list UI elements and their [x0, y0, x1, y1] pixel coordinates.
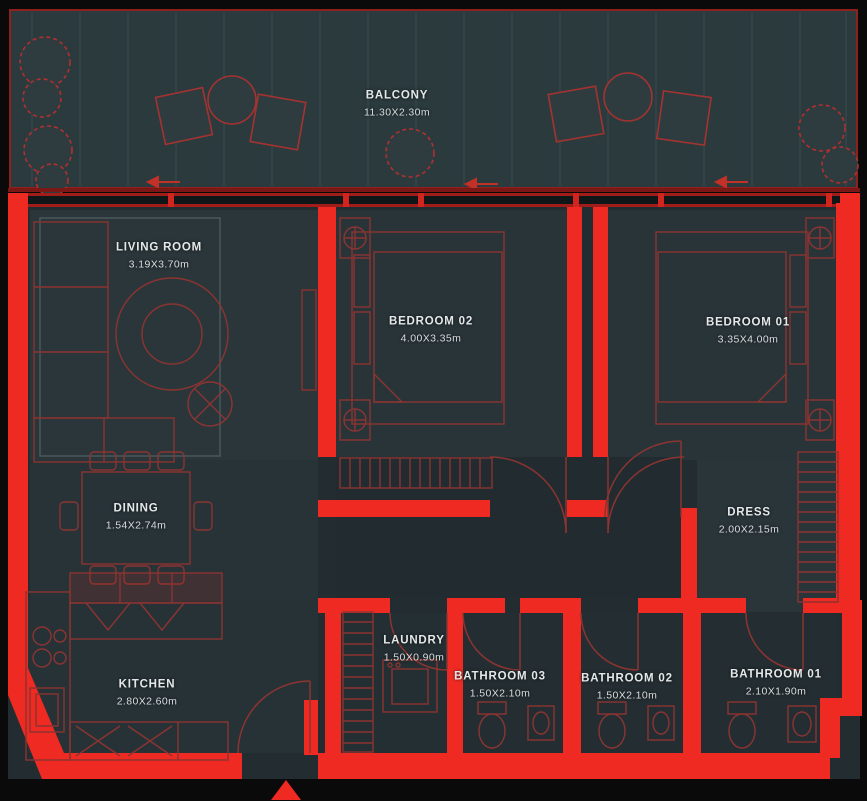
entrance-arrow-icon: [271, 780, 301, 800]
floor-plan: BALCONY 11.30X2.30m LIVING ROOM 3.19X3.7…: [0, 0, 867, 801]
floor-plan-drawing: [0, 0, 867, 801]
upper-cabinets: [70, 573, 222, 603]
window-wall: [8, 188, 860, 207]
balcony-area: [10, 10, 858, 196]
